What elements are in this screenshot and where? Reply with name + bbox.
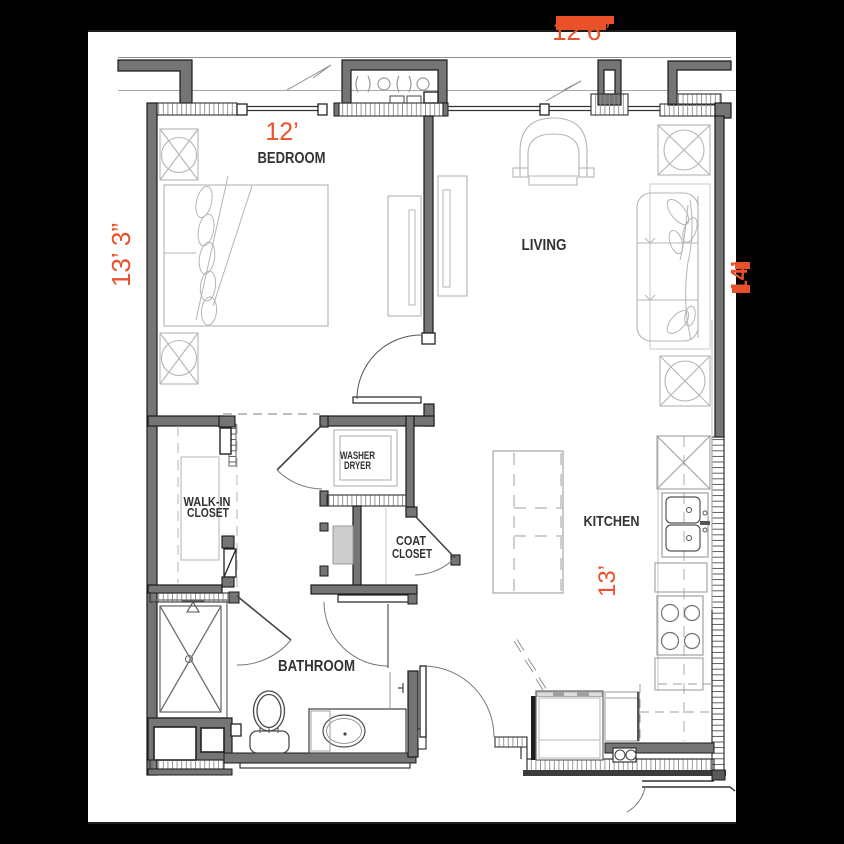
svg-text:12’: 12’ bbox=[265, 118, 298, 146]
svg-text:CLOSET: CLOSET bbox=[187, 505, 229, 520]
svg-text:12’6”: 12’6” bbox=[552, 16, 610, 46]
svg-text:BEDROOM: BEDROOM bbox=[258, 150, 326, 167]
svg-text:CLOSET: CLOSET bbox=[392, 546, 432, 561]
svg-text:13’: 13’ bbox=[594, 565, 621, 597]
svg-text:LIVING: LIVING bbox=[522, 237, 567, 254]
svg-text:KITCHEN: KITCHEN bbox=[584, 513, 640, 530]
svg-text:13’ 3”: 13’ 3” bbox=[106, 223, 136, 287]
svg-text:BATHROOM: BATHROOM bbox=[278, 658, 355, 675]
svg-text:DRYER: DRYER bbox=[344, 460, 371, 472]
